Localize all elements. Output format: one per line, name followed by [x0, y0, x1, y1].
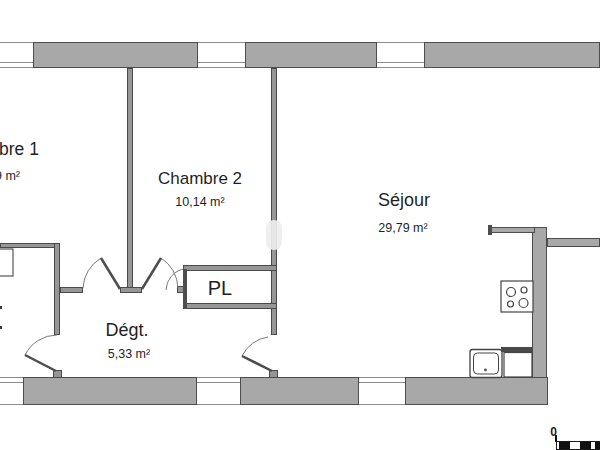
wall-stub-bathroom-door	[53, 370, 62, 378]
chambre1-area: 9 m²	[0, 170, 20, 183]
placard-label: PL	[208, 278, 232, 298]
dishwasher-icon	[501, 347, 533, 377]
window-bottom-far-left	[0, 377, 23, 405]
door-chambre2	[142, 258, 178, 289]
window-top-far-left	[0, 42, 33, 68]
sejour-area: 29,79 m²	[378, 222, 427, 235]
wall-right-vertical	[532, 227, 547, 378]
wall-placard-bottom	[183, 303, 277, 309]
cutoff-text-fragment	[0, 326, 2, 329]
door-sejour	[242, 337, 272, 371]
low-wall-end-cap	[488, 225, 492, 235]
wall-bottom-middle	[240, 377, 359, 405]
wall-stub-chambre1-door	[60, 287, 83, 293]
window-bottom-degagement	[197, 377, 240, 405]
sink-icon	[470, 350, 502, 378]
washbasin-icon	[0, 249, 13, 276]
wall-top-right	[424, 42, 600, 68]
low-wall-kitchen	[490, 227, 535, 233]
degagement-area: 5,33 m²	[108, 348, 150, 361]
window-top-sejour	[377, 42, 424, 68]
wall-placard-top	[183, 265, 277, 271]
window-bottom-sejour	[359, 377, 405, 405]
scale-bar	[556, 441, 600, 450]
sejour-label: Séjour	[378, 191, 430, 209]
degagement-label: Dégt.	[105, 321, 148, 339]
chambre1-label: bre 1	[0, 141, 39, 159]
wall-cap-chambre1-chambre2	[120, 287, 142, 293]
door-chambre1	[83, 258, 120, 289]
door-bathroom	[25, 335, 57, 371]
wall-top-left	[33, 42, 198, 68]
wall-chambre2-sejour	[271, 68, 277, 335]
wall-stub-sejour-door	[269, 370, 278, 378]
cutoff-text-fragment	[0, 306, 2, 309]
wall-stub-placard-hinge	[177, 286, 185, 293]
floor-plan: bre 1 9 m² Chambre 2 10,14 m² Séjour 29,…	[0, 0, 600, 450]
window-top-chambre1	[198, 42, 245, 68]
chambre2-label: Chambre 2	[158, 170, 242, 187]
wall-bottom-right	[405, 377, 548, 405]
wall-bathroom-top	[0, 243, 60, 248]
wall-right-horizontal	[547, 238, 600, 247]
chambre2-area: 10,14 m²	[175, 196, 224, 209]
watermark-blob	[266, 220, 282, 250]
wall-bottom-left	[23, 377, 197, 405]
wall-chambre1-chambre2	[127, 68, 133, 288]
cooktop-icon	[501, 281, 533, 312]
wall-top-middle	[245, 42, 377, 68]
